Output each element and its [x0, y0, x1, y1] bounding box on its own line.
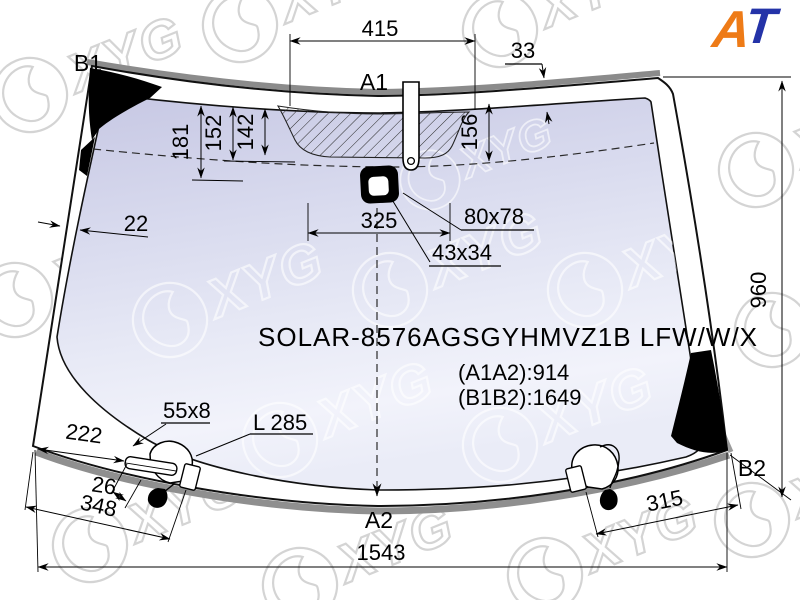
dim-142-label: 142: [233, 114, 258, 151]
windshield-diagram: XYG XYG XYG XYG XYG XYG XYG XYG XYG XYG …: [0, 0, 800, 600]
dim-325-label: 325: [361, 208, 398, 233]
camera-bracket: [360, 165, 400, 204]
shade-band-hatch: [278, 106, 469, 158]
part-code: SOLAR-8576AGSGYHMVZ1B LFW/W/X: [258, 322, 758, 352]
dim-43x34-label: 43x34: [432, 240, 492, 265]
label-a2: A2: [365, 507, 393, 533]
dim-55x8-label: 55x8: [163, 398, 211, 423]
dim-80x78-label: 80x78: [464, 204, 524, 229]
label-b1: B1: [74, 50, 102, 76]
dim-152-label: 152: [201, 115, 226, 152]
camera-window: [368, 176, 389, 196]
part-a1a2: (A1A2):914: [458, 360, 569, 385]
dim-960-label: 960: [746, 272, 771, 309]
dim-33-label: 33: [511, 38, 535, 63]
dim-L285-label: L 285: [253, 410, 307, 435]
dim-222-label: 222: [64, 419, 104, 449]
label-a1: A1: [360, 69, 388, 95]
dim-156-label: 156: [457, 114, 482, 151]
diagram-canvas: XYG XYG XYG XYG XYG XYG XYG XYG XYG XYG …: [0, 0, 800, 600]
dim-181-label: 181: [168, 124, 193, 161]
label-b2: B2: [738, 455, 766, 481]
mirror-mount-bracket: [403, 82, 419, 170]
dim-22-label: 22: [124, 211, 148, 236]
mirror-bracket-hole: [408, 158, 415, 165]
part-b1b2: (B1B2):1649: [458, 385, 582, 410]
dim-1543-label: 1543: [357, 540, 406, 565]
dim-415-label: 415: [362, 16, 399, 41]
at-logo-a: A: [708, 1, 754, 59]
at-logo: T A: [708, 0, 783, 59]
